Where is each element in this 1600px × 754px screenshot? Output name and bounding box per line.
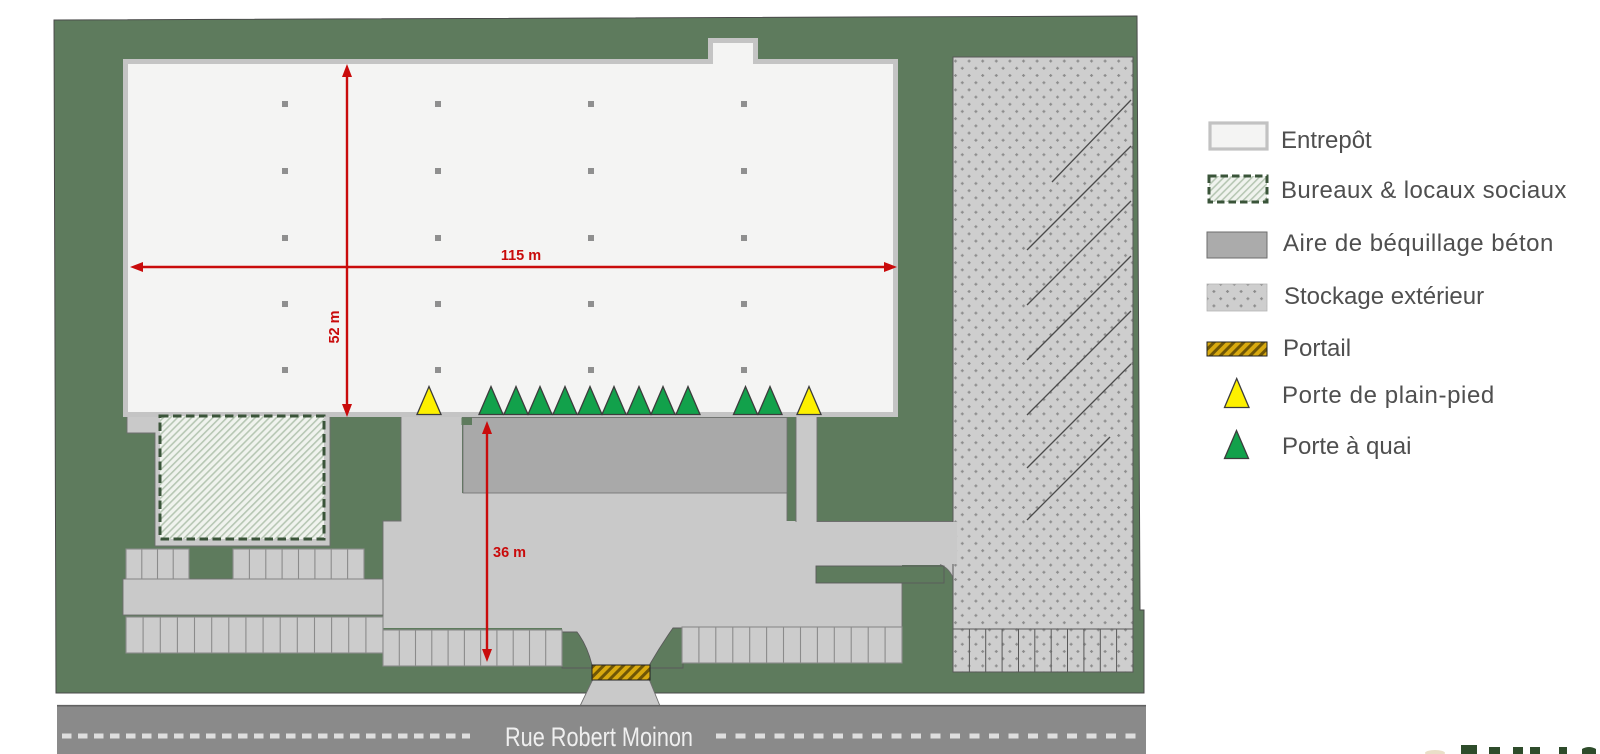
svg-text:Entrepôt: Entrepôt	[1281, 127, 1372, 154]
svg-text:Aire de béquillage béton: Aire de béquillage béton	[1283, 230, 1554, 257]
svg-text:Bureaux & locaux sociaux: Bureaux & locaux sociaux	[1281, 177, 1567, 204]
svg-text:Portail: Portail	[1283, 335, 1351, 362]
svg-text:115 m: 115 m	[501, 248, 541, 264]
svg-text:Porte de plain-pied: Porte de plain-pied	[1282, 382, 1495, 409]
svg-text:52 m: 52 m	[327, 310, 343, 343]
svg-text:Porte à quai: Porte à quai	[1282, 433, 1411, 460]
svg-text:36 m: 36 m	[493, 545, 526, 561]
svg-text:Rue Robert Moinon: Rue Robert Moinon	[505, 722, 693, 752]
svg-text:Stockage extérieur: Stockage extérieur	[1284, 283, 1484, 310]
